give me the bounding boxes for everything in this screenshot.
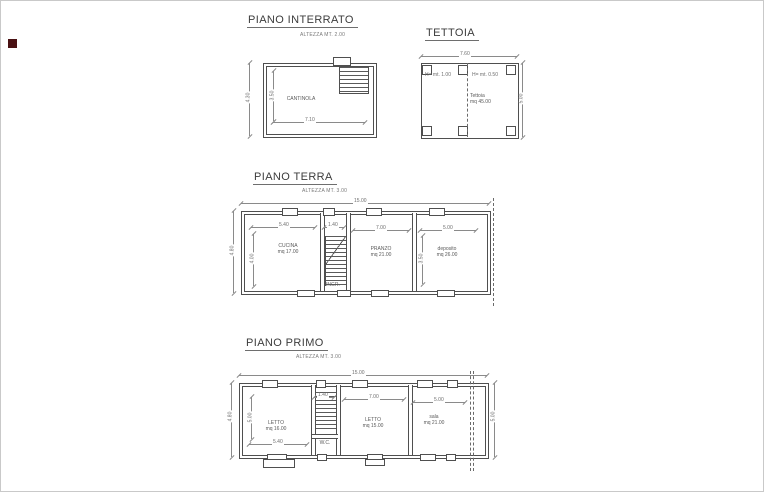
window-marker (316, 380, 326, 388)
window-marker (417, 380, 433, 388)
primo-stair-dim-label: 1.40 (317, 393, 329, 398)
tettoia-area-value: mq 45.00 (470, 99, 506, 105)
window-sill-marker (437, 290, 455, 297)
primo-room-label: sala mq 21.00 (409, 414, 459, 427)
tettoia-height-left-note: H= mt. 1.00 (424, 73, 452, 78)
terra-room-area: mq 17.00 (263, 249, 313, 255)
terra-section-dashed-line (493, 198, 494, 306)
primo-room-area: mq 15.00 (348, 423, 398, 429)
tettoia-width-dim-label: 7.60 (459, 52, 471, 57)
interrato-inner-height-dim-label: 3.50 (270, 90, 275, 102)
terra-room3-dim-label: 5.00 (442, 226, 454, 231)
window-marker (352, 380, 368, 388)
interrato-outer-height-dim-label: 4.30 (246, 92, 251, 104)
window-marker (429, 208, 445, 216)
terra-room1-height-dim-label: 4.00 (250, 253, 255, 265)
primo-room2-dim-label: 7.00 (368, 395, 380, 400)
primo-right-height-dim-label: 5.00 (491, 411, 496, 423)
window-sill-marker (446, 454, 456, 461)
terra-stair (325, 236, 347, 286)
tettoia-center-dashed-line (467, 63, 468, 137)
tettoia-pillar (422, 126, 432, 136)
window-sill-marker (371, 290, 389, 297)
window-marker (366, 208, 382, 216)
external-step (263, 459, 295, 468)
terra-stair-dim-label: 1.40 (327, 223, 339, 228)
tettoia-pillar (506, 65, 516, 75)
terra-room2-dim-label: 7.00 (375, 226, 387, 231)
interrato-room-label: CANTINOLA (277, 96, 325, 102)
terra-room-label: PRANZO mq 21.00 (356, 246, 406, 259)
primo-room-label: LETTO mq 15.00 (348, 417, 398, 430)
external-step (365, 459, 385, 466)
floor-plan-sheet: PIANO INTERRATO ALTEZZA MT. 2.00 CANTINO… (0, 0, 764, 492)
interrato-title: PIANO INTERRATO (247, 14, 358, 28)
terra-title: PIANO TERRA (253, 171, 337, 185)
primo-title: PIANO PRIMO (245, 337, 328, 351)
tettoia-height-right-note: H= mt. 0.50 (471, 73, 499, 78)
terra-room-area: mq 26.00 (422, 252, 472, 258)
terra-entrance-label: INGR. (320, 282, 346, 288)
primo-section-dashed-line (470, 371, 471, 471)
interrato-width-dim-label: 7.10 (304, 118, 316, 123)
window-sill-marker (420, 454, 436, 461)
terra-stair-winder-line (326, 236, 346, 264)
primo-subtitle: ALTEZZA MT. 3.00 (296, 354, 341, 360)
window-marker (447, 380, 458, 388)
interrato-subtitle: ALTEZZA MT. 2.00 (300, 32, 345, 38)
primo-total-width-dim-label: 15.00 (351, 371, 366, 376)
interrato-width-dim-line (273, 122, 365, 123)
primo-room1-dim-label: 5.40 (272, 440, 284, 445)
window-sill-marker (317, 454, 327, 461)
primo-outer-height-dim-label: 4.80 (228, 411, 233, 423)
tettoia-area-label: Tettoia mq 45.00 (470, 93, 506, 106)
window-sill-marker (297, 290, 315, 297)
primo-wc-label: W.C. (313, 440, 337, 446)
tettoia-height-dim-label: 5.00 (519, 93, 524, 105)
primo-room-label: LETTO mq 16.00 (251, 420, 301, 433)
primo-section-dashed-line (473, 371, 474, 471)
primo-room3-dim-label: 5.00 (433, 398, 445, 403)
terra-room1-dim-label: 5.40 (278, 223, 290, 228)
terra-room-area: mq 21.00 (356, 252, 406, 258)
primo-room-area: mq 16.00 (251, 426, 301, 432)
terra-partition-wall (412, 213, 417, 291)
window-marker (323, 208, 335, 216)
terra-room-label: CUCINA mq 17.00 (263, 243, 313, 256)
terra-outer-height-dim-label: 4.80 (230, 245, 235, 257)
terra-total-width-dim-label: 15.00 (353, 199, 368, 204)
primo-room1-height-dim-label: 5.00 (248, 412, 253, 424)
interrato-stair (339, 67, 369, 94)
tettoia-pillar (506, 126, 516, 136)
tettoia-title: TETTOIA (425, 27, 479, 41)
window-marker (282, 208, 298, 216)
terra-room-label: deposito mq 26.00 (422, 246, 472, 259)
scan-artifact-marker (8, 39, 17, 48)
door-threshold-marker (337, 290, 351, 297)
terra-subtitle: ALTEZZA MT. 3.00 (302, 188, 347, 194)
window-marker (262, 380, 278, 388)
interrato-stair-landing (333, 57, 351, 66)
interrato-room-name: CANTINOLA (277, 96, 325, 102)
primo-wc-wall (312, 434, 338, 439)
terra-room3-height-dim-label: 3.50 (419, 253, 424, 265)
primo-room-area: mq 21.00 (409, 420, 459, 426)
